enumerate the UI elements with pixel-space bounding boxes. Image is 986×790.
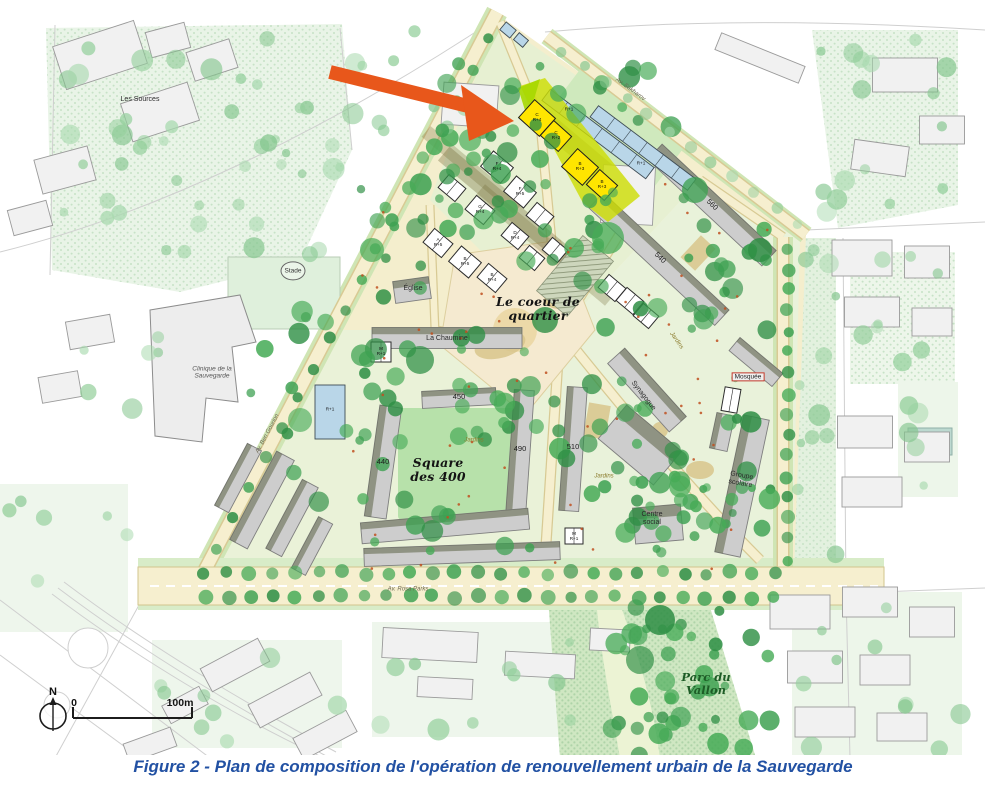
tree	[532, 307, 558, 333]
tree	[80, 384, 96, 400]
tree	[874, 251, 890, 267]
tree	[507, 124, 520, 137]
context-building	[770, 595, 830, 629]
tree	[252, 79, 263, 90]
tree	[645, 605, 675, 635]
tree	[754, 520, 771, 537]
tree	[417, 151, 429, 163]
red-dot	[431, 332, 434, 335]
tree	[259, 31, 274, 46]
tree	[697, 592, 711, 606]
tree	[395, 491, 413, 509]
tree	[468, 65, 479, 76]
tree	[616, 404, 634, 422]
tree	[632, 439, 642, 449]
tree	[640, 108, 652, 120]
tree	[197, 568, 209, 580]
red-dot	[648, 294, 651, 297]
tree	[725, 493, 738, 506]
tree	[335, 564, 349, 578]
tree	[782, 491, 793, 502]
red-dot	[480, 293, 483, 296]
tree	[490, 390, 507, 407]
tree	[109, 119, 128, 138]
tree	[950, 704, 970, 724]
scale-zero-label: 0	[71, 697, 77, 709]
red-dot	[698, 402, 701, 405]
tree	[723, 564, 738, 579]
tree	[582, 374, 602, 394]
tree	[792, 484, 803, 495]
tree	[566, 592, 577, 603]
tree	[706, 244, 720, 258]
tree	[868, 640, 883, 655]
tree	[500, 85, 520, 105]
tree	[632, 591, 647, 606]
tree	[609, 590, 621, 602]
tree	[359, 590, 370, 601]
tree	[199, 590, 214, 605]
tree	[564, 714, 576, 726]
tree	[295, 103, 306, 114]
tree	[355, 436, 364, 445]
tree	[198, 689, 211, 702]
tree	[286, 465, 301, 480]
tree	[260, 134, 277, 151]
context-building	[912, 308, 952, 336]
tree	[531, 150, 549, 168]
tree	[609, 568, 622, 581]
tree	[540, 179, 550, 189]
tree	[898, 699, 913, 714]
tree	[357, 493, 368, 504]
tree	[416, 261, 427, 272]
tree	[467, 326, 485, 344]
tree	[860, 164, 870, 174]
tree	[729, 509, 737, 517]
tree	[260, 451, 272, 463]
tree	[721, 682, 730, 691]
tree	[737, 461, 757, 481]
tree	[639, 62, 657, 80]
context-building	[417, 677, 473, 700]
tree	[435, 194, 444, 203]
tree	[137, 135, 151, 149]
tree	[288, 408, 312, 432]
tree	[357, 185, 365, 193]
tree	[447, 591, 462, 606]
tree	[437, 74, 456, 93]
tree	[556, 47, 567, 58]
tree	[200, 58, 222, 80]
tree	[525, 543, 534, 552]
tree	[633, 301, 649, 317]
tree	[455, 399, 470, 414]
tree	[313, 590, 325, 602]
tree	[592, 419, 609, 436]
tree	[224, 104, 239, 119]
context-building	[123, 727, 177, 755]
tree	[233, 199, 245, 211]
tree	[631, 567, 643, 579]
tree	[376, 457, 390, 471]
north-label: N	[49, 686, 57, 698]
context-building	[843, 587, 898, 617]
context-building	[38, 371, 82, 404]
tree	[900, 396, 919, 415]
tree	[249, 216, 264, 231]
red-dot	[592, 548, 595, 551]
tree	[603, 719, 622, 738]
tree	[885, 199, 896, 210]
context-building	[845, 297, 900, 327]
red-dot	[586, 425, 589, 428]
context-building	[877, 713, 927, 741]
tree	[677, 510, 691, 524]
new-building	[721, 387, 741, 413]
tree	[701, 569, 712, 580]
tree	[832, 292, 841, 301]
tree	[351, 344, 373, 366]
context-building	[7, 200, 52, 235]
red-dot	[446, 516, 449, 519]
tree	[819, 254, 839, 274]
tree	[745, 567, 758, 580]
tree	[452, 378, 467, 393]
tree	[370, 213, 385, 228]
tree	[404, 588, 418, 602]
tree	[694, 309, 714, 329]
tree	[359, 368, 370, 379]
tree	[227, 512, 238, 523]
tree	[536, 62, 545, 71]
tree	[690, 531, 700, 541]
red-dot	[710, 568, 713, 571]
tree	[276, 159, 287, 170]
tree	[492, 195, 504, 207]
tree	[100, 211, 114, 225]
tree	[178, 245, 192, 259]
red-dot	[580, 528, 583, 531]
tree	[782, 264, 795, 277]
tree	[780, 448, 793, 461]
red-dot	[468, 385, 471, 388]
red-dot	[700, 412, 703, 415]
red-dot	[352, 450, 355, 453]
tree	[782, 388, 796, 402]
tree	[704, 156, 716, 168]
tree	[464, 167, 473, 176]
tree	[408, 25, 420, 37]
tree	[700, 677, 720, 697]
tree	[913, 341, 930, 358]
red-dot	[383, 357, 386, 360]
red-dot	[697, 378, 700, 381]
tree	[703, 483, 711, 491]
tree	[783, 429, 795, 441]
tree	[308, 364, 319, 375]
tree	[494, 568, 507, 581]
tree	[623, 93, 633, 103]
tree	[816, 47, 825, 56]
tree	[677, 591, 690, 604]
tree	[60, 208, 69, 217]
tree	[431, 505, 449, 523]
tree	[645, 502, 654, 511]
tree	[933, 268, 943, 278]
tree	[421, 520, 443, 542]
red-dot	[418, 328, 421, 331]
tree	[491, 164, 511, 184]
red-dot	[668, 323, 671, 326]
tree	[709, 517, 726, 534]
tree	[688, 325, 696, 333]
red-dot	[637, 315, 640, 318]
tree	[496, 537, 514, 555]
tree	[380, 202, 392, 214]
tree	[644, 712, 654, 722]
tree	[241, 566, 256, 581]
tree	[927, 87, 939, 99]
figure-2-site-plan: Les SourcesStadeClinique de la Sauvegard…	[0, 0, 986, 790]
tree	[371, 716, 389, 734]
tree	[726, 170, 738, 182]
tree	[220, 734, 234, 748]
tree	[937, 183, 948, 194]
new-building	[565, 528, 583, 544]
tree	[634, 404, 642, 412]
tree	[334, 588, 348, 602]
tree	[100, 193, 116, 209]
tree	[661, 647, 676, 662]
red-dot	[458, 503, 461, 506]
tree	[103, 511, 112, 520]
context-building	[842, 477, 902, 507]
tree	[436, 124, 450, 138]
tree	[291, 301, 312, 322]
red-dot	[371, 567, 374, 570]
tree	[748, 238, 772, 262]
tree	[759, 488, 780, 509]
tree	[357, 61, 367, 71]
tree	[2, 503, 16, 517]
tree	[471, 588, 486, 603]
tree	[684, 254, 693, 263]
tree	[325, 138, 340, 153]
red-dot	[545, 371, 548, 374]
tree	[873, 319, 882, 328]
tree	[387, 367, 405, 385]
tree	[739, 710, 759, 730]
tree	[782, 282, 795, 295]
tree	[473, 209, 493, 229]
red-dot	[498, 320, 501, 323]
tree	[899, 423, 919, 443]
tree	[81, 41, 95, 55]
tree	[426, 138, 443, 155]
context-building	[838, 416, 893, 448]
tree	[783, 556, 793, 566]
tree	[905, 251, 916, 262]
tree	[550, 85, 567, 102]
red-dot	[569, 504, 572, 507]
tree	[690, 500, 702, 512]
tree	[328, 696, 347, 715]
tree	[617, 102, 627, 112]
tree	[388, 55, 399, 66]
tree	[649, 723, 670, 744]
tree	[548, 396, 560, 408]
tree	[288, 591, 302, 605]
tree	[256, 340, 274, 358]
tree	[654, 591, 666, 603]
tree	[340, 305, 350, 315]
tree	[482, 149, 491, 158]
tree	[293, 392, 303, 402]
tree	[748, 187, 759, 198]
tree	[937, 121, 947, 131]
tree	[360, 238, 384, 262]
tree	[617, 376, 627, 386]
tree	[853, 80, 872, 99]
tree	[141, 345, 157, 361]
clinique-building	[150, 295, 256, 442]
tree	[478, 432, 492, 446]
tree	[669, 476, 691, 498]
tree	[159, 136, 169, 146]
tree	[600, 195, 612, 207]
tree	[600, 76, 612, 88]
tree	[711, 715, 720, 724]
tree	[166, 50, 185, 69]
tree	[323, 158, 345, 180]
tree	[657, 712, 669, 724]
tree	[171, 175, 182, 186]
tree	[588, 567, 600, 579]
tree	[827, 189, 848, 210]
red-dot	[465, 330, 468, 333]
tree	[266, 568, 278, 580]
red-dot	[724, 307, 727, 310]
tree	[152, 331, 164, 343]
context-building	[715, 33, 805, 83]
tree	[805, 430, 820, 445]
tree	[520, 347, 529, 356]
tree	[246, 389, 255, 398]
tree	[767, 591, 779, 603]
tree	[665, 127, 675, 137]
red-dot	[766, 229, 769, 232]
tree	[585, 590, 598, 603]
tree	[68, 64, 89, 85]
tree	[383, 568, 396, 581]
tree	[679, 568, 692, 581]
tree	[376, 289, 391, 304]
red-dot	[516, 380, 519, 383]
tree	[541, 590, 556, 605]
red-dot	[567, 251, 570, 254]
tree	[276, 422, 288, 434]
red-dot	[616, 417, 619, 420]
existing-building	[372, 328, 522, 349]
red-dot	[680, 405, 683, 408]
tree	[495, 590, 509, 604]
tree	[649, 472, 671, 494]
tree	[740, 411, 761, 432]
tree	[664, 689, 679, 704]
tree	[459, 224, 475, 240]
tree	[782, 532, 794, 544]
tree	[239, 160, 251, 172]
tree	[236, 73, 247, 84]
tree	[643, 513, 660, 530]
tree	[385, 213, 398, 226]
tree	[542, 569, 554, 581]
tree	[722, 278, 743, 299]
tree	[853, 325, 872, 344]
tree	[122, 398, 143, 419]
tree	[15, 496, 27, 508]
tree	[795, 380, 805, 390]
tree	[558, 450, 576, 468]
tree	[760, 711, 780, 731]
tree	[780, 303, 793, 316]
red-dot	[468, 495, 471, 498]
tree	[161, 245, 171, 255]
tree	[698, 723, 707, 732]
red-dot	[449, 444, 452, 447]
tree	[565, 638, 574, 647]
tree	[655, 525, 671, 541]
tree	[450, 427, 468, 445]
tree	[520, 376, 541, 397]
context-building	[382, 628, 478, 663]
tree	[736, 482, 748, 494]
red-dot	[716, 339, 719, 342]
red-dot	[460, 337, 463, 340]
tree	[863, 55, 880, 72]
tree	[707, 733, 729, 755]
tree	[425, 589, 438, 602]
tree	[697, 218, 712, 233]
tree	[388, 401, 403, 416]
tree	[552, 424, 565, 437]
tree	[611, 461, 624, 474]
site-plan-map	[0, 0, 986, 755]
tree	[758, 320, 777, 339]
tree	[920, 481, 928, 489]
tree	[655, 671, 675, 691]
tree	[731, 374, 739, 382]
tree	[302, 246, 318, 262]
tree	[392, 434, 407, 449]
tree	[165, 120, 178, 133]
red-dot	[420, 564, 423, 567]
tree	[780, 472, 793, 485]
tree	[243, 482, 254, 493]
tree	[282, 149, 290, 157]
tree	[517, 588, 532, 603]
tree	[31, 574, 44, 587]
tree	[835, 170, 855, 190]
tree	[507, 378, 522, 393]
red-dot	[374, 534, 377, 537]
tree	[426, 546, 435, 555]
tree	[529, 419, 544, 434]
red-dot	[736, 295, 739, 298]
tree	[709, 638, 723, 652]
tree	[564, 564, 579, 579]
